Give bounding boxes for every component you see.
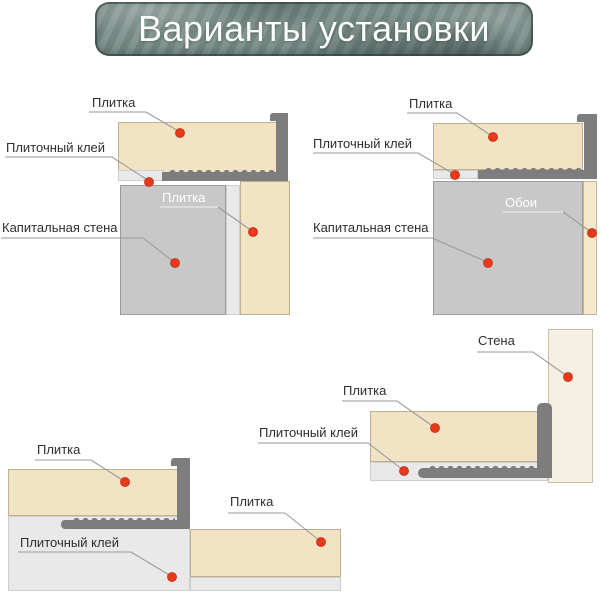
tile-horizontal (433, 123, 583, 170)
tile-vertical (240, 181, 290, 315)
installation-variants-infographic: Варианты установки (0, 0, 600, 593)
tile-adhesive-layer (118, 170, 164, 181)
trim-profile-base (61, 520, 190, 529)
label-tile-side: Плитка (162, 191, 205, 205)
label-tile-adhesive: Плиточный клей (313, 137, 412, 151)
trim-profile-cap (577, 114, 597, 122)
label-tile-upper: Плитка (37, 443, 80, 457)
label-tile-adhesive: Плиточный клей (20, 536, 119, 550)
trim-profile-cap (270, 113, 288, 121)
wall (548, 329, 593, 483)
trim-serrated-edge (484, 166, 582, 171)
trim-profile-base (478, 170, 597, 179)
tile-lower-level (190, 529, 341, 577)
label-wallpaper: Обои (505, 196, 537, 210)
label-tile-lower: Плитка (230, 495, 273, 509)
trim-profile-base (418, 468, 552, 478)
tile-floor (370, 411, 542, 462)
wallpaper-strip (583, 181, 597, 315)
title-banner: Варианты установки (95, 2, 533, 56)
label-tile: Плитка (92, 96, 135, 110)
trim-profile-vertical (177, 458, 190, 529)
page-title: Варианты установки (138, 8, 490, 50)
label-main-wall: Капитальная стена (2, 221, 118, 235)
trim-profile-vertical (537, 403, 552, 478)
trim-profile-vertical (584, 114, 597, 179)
trim-profile-base (162, 172, 288, 181)
trim-serrated-edge (72, 516, 175, 521)
label-wall: Стена (478, 334, 515, 348)
tile-adhesive-layer-vertical (226, 185, 240, 315)
trim-serrated-edge (168, 168, 274, 173)
label-tile-adhesive: Плиточный клей (259, 426, 358, 440)
label-tile: Плитка (343, 384, 386, 398)
tile-adhesive-strip (190, 577, 341, 591)
trim-profile-cap (171, 458, 190, 466)
trim-serrated-edge (428, 464, 535, 469)
label-tile: Плитка (409, 97, 452, 111)
label-tile-adhesive: Плиточный клей (6, 141, 105, 155)
tile-horizontal (118, 122, 282, 174)
tile-upper-level (8, 469, 185, 516)
tile-adhesive-layer (433, 170, 478, 179)
trim-profile-vertical (276, 113, 288, 181)
label-main-wall: Капитальная стена (313, 221, 429, 235)
